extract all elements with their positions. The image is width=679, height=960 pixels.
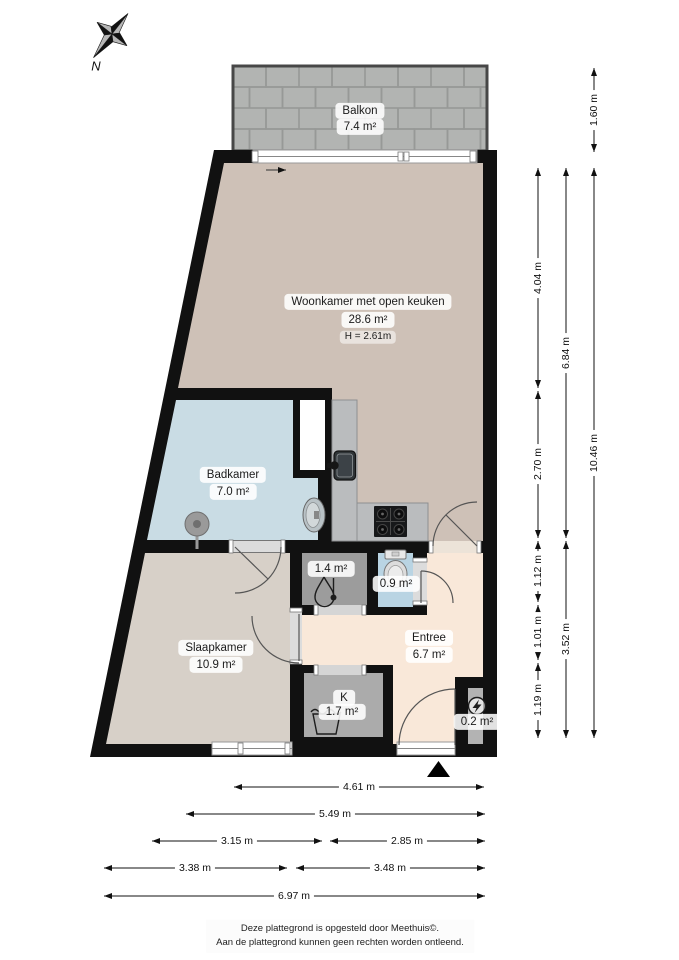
dim-right-112: 1.12 m: [532, 551, 544, 591]
dim-bottom-549: 5.49 m: [315, 808, 355, 820]
footer-disclaimer: Deze plattegrond is opgesteld door Meeth…: [206, 920, 474, 953]
room-label-entree: Entree: [405, 630, 453, 646]
front-door: [397, 742, 455, 755]
room-label-slaapkamer: Slaapkamer: [178, 640, 253, 656]
bedroom-window: [212, 742, 292, 755]
dim-bottom-697: 6.97 m: [274, 890, 314, 902]
washbasin-icon: [303, 498, 325, 532]
compass-rose-icon: [79, 2, 143, 70]
entrance-marker-icon: [427, 761, 450, 777]
dim-bottom-461: 4.61 m: [339, 781, 379, 793]
room-area-toilet: 0.9 m²: [373, 576, 420, 592]
dim-right-160: 1.60 m: [588, 90, 600, 130]
room-area-slaapkamer: 10.9 m²: [190, 657, 243, 673]
room-label-badkamer: Badkamer: [200, 467, 266, 483]
room-area-entree: 6.7 m²: [406, 647, 453, 663]
room-area-boiler-closet: 1.4 m²: [308, 561, 355, 577]
dim-right-1046: 10.46 m: [588, 430, 600, 476]
dim-right-119: 1.19 m: [532, 680, 544, 720]
dim-right-684: 6.84 m: [560, 333, 572, 373]
room-area-meterkast: 0.2 m²: [454, 714, 501, 730]
stove-icon: [374, 506, 407, 537]
room-area-balkon: 7.4 m²: [337, 119, 384, 135]
electric-meter-icon: [469, 698, 486, 715]
footer-line2: Aan de plattegrond kunnen geen rechten w…: [216, 936, 464, 950]
dim-bottom-315: 3.15 m: [217, 835, 257, 847]
dim-bottom-348: 3.48 m: [370, 862, 410, 874]
room-label-woonkamer: Woonkamer met open keuken: [284, 294, 451, 310]
room-area-kast: 1.7 m²: [319, 704, 366, 720]
dim-right-270: 2.70 m: [532, 444, 544, 484]
dim-right-101: 1.01 m: [532, 612, 544, 652]
floor-plan-page: N Balkon 7.4 m² Woonkamer met open keuke…: [0, 0, 679, 960]
footer-line1: Deze plattegrond is opgesteld door Meeth…: [216, 922, 464, 936]
shaft: [300, 400, 325, 470]
dim-right-352: 3.52 m: [560, 619, 572, 659]
dim-bottom-338: 3.38 m: [175, 862, 215, 874]
room-area-badkamer: 7.0 m²: [210, 484, 257, 500]
dim-right-404: 4.04 m: [532, 258, 544, 298]
room-height-woonkamer: H = 2.61m: [340, 331, 396, 344]
room-area-woonkamer: 28.6 m²: [342, 312, 395, 328]
dim-bottom-285: 2.85 m: [387, 835, 427, 847]
room-label-balkon: Balkon: [335, 103, 384, 119]
compass-north-label: N: [91, 59, 100, 74]
